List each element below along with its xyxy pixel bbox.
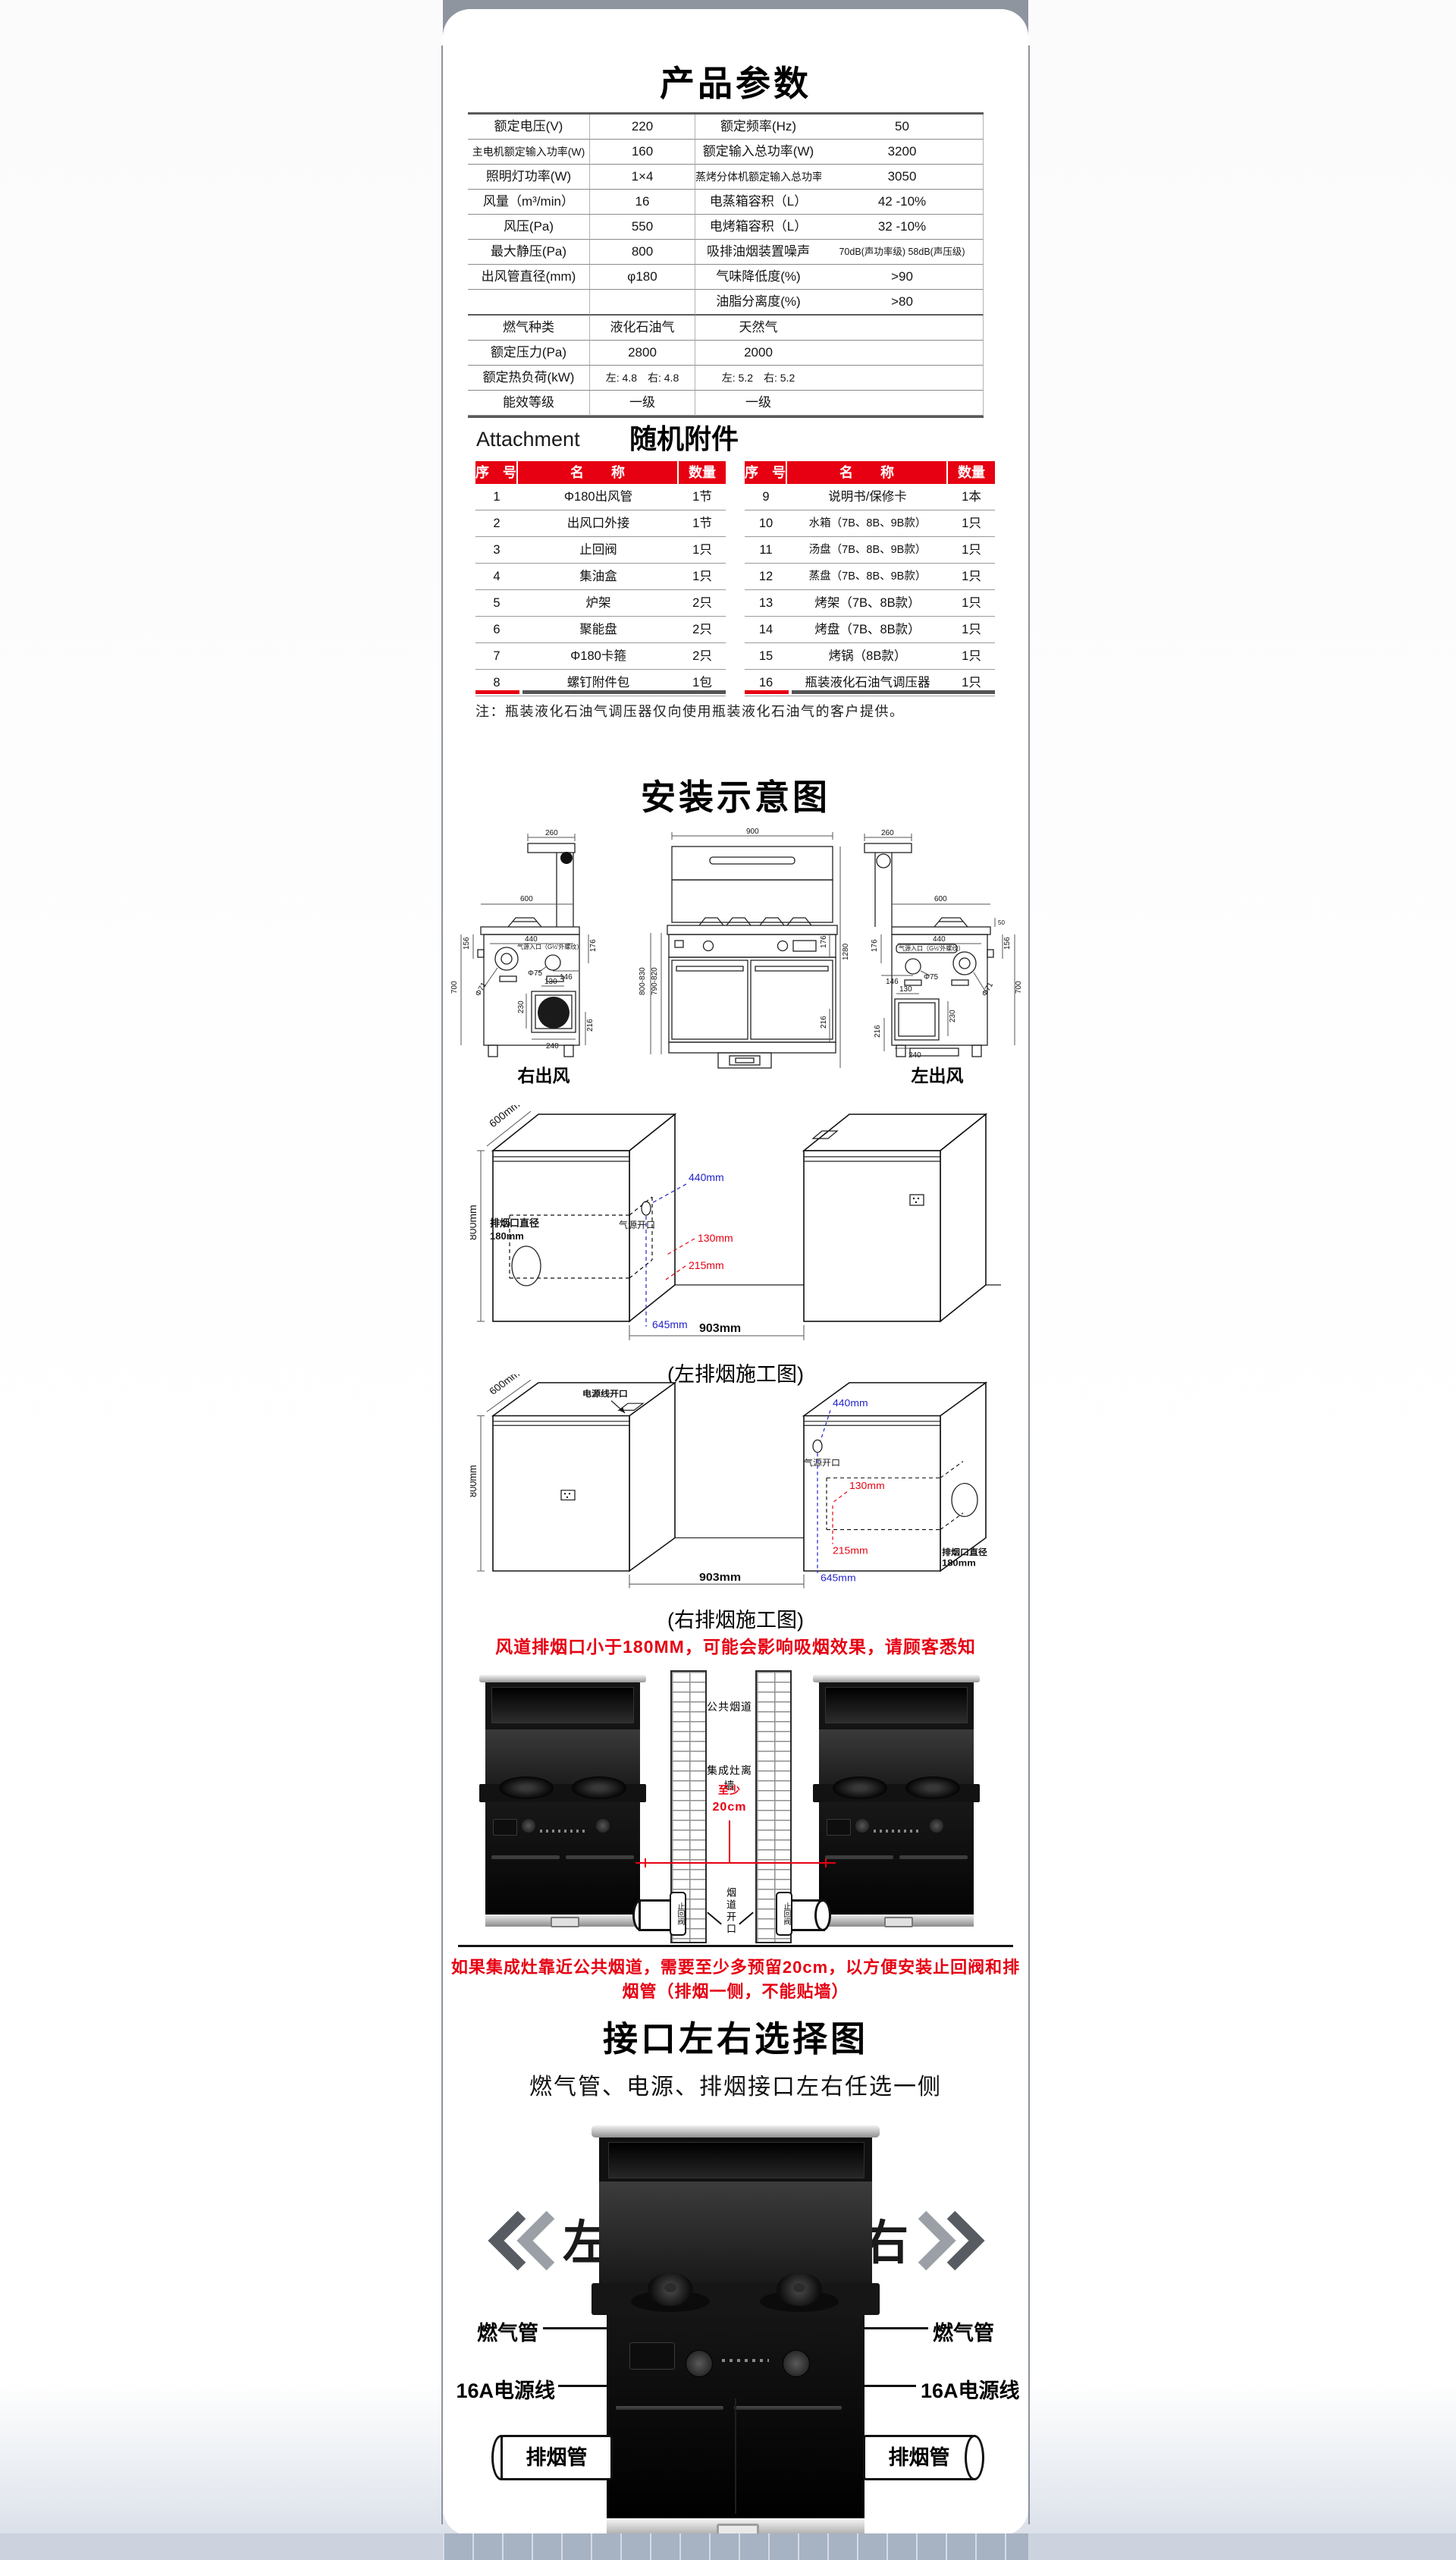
control-band [669, 934, 836, 957]
svg-text:Φ71: Φ71 [981, 981, 995, 997]
exhaust-pipe-label-right: 排烟管 [863, 2435, 975, 2480]
table-footer-red [745, 690, 789, 694]
param-label-1: 主电机额定输入功率(W) [468, 140, 590, 165]
base [669, 1042, 836, 1053]
svg-text:600mm: 600mm [487, 1105, 522, 1129]
svg-text:130mm: 130mm [698, 1232, 733, 1244]
svg-text:600: 600 [934, 895, 947, 903]
attachment-no: 6 [475, 617, 518, 643]
param-value-2 [821, 366, 984, 391]
svg-text:215mm: 215mm [689, 1259, 724, 1271]
interface-subtitle: 燃气管、电源、排烟接口左右任选一侧 [443, 2068, 1028, 2101]
param-value-2: 42 -10% [821, 190, 984, 215]
attachment-name: 止回阀 [518, 537, 679, 564]
attachment-no: 9 [745, 484, 787, 510]
param-value-1: 2800 [590, 341, 695, 366]
col-header-no: 序 号 [745, 461, 787, 484]
param-value-2: >90 [821, 265, 984, 290]
svg-text:903mm: 903mm [699, 1322, 741, 1335]
caption-duct-right: (右排烟施工图) [470, 1604, 1001, 1633]
param-value-2 [821, 391, 984, 416]
power-line-left [558, 2385, 607, 2387]
back-panel [672, 880, 833, 922]
svg-text:气源开口: 气源开口 [619, 1219, 655, 1230]
left-range-dims: 800-830 790-820 [639, 933, 661, 1054]
svg-text:176: 176 [871, 939, 879, 952]
wall-distance-min: 至少 [702, 1783, 757, 1798]
svg-text:700: 700 [450, 981, 459, 994]
attachment-title-cn: 随机附件 [629, 417, 739, 457]
attachment-rows-right: 9 说明书/保修卡 1本 10 水箱（7B、8B、9B款） 1只 11 汤盘（7… [745, 484, 995, 696]
svg-text:Φ75: Φ75 [528, 969, 543, 978]
svg-text:240: 240 [546, 1042, 559, 1051]
red-dim-tick-left [645, 1858, 646, 1867]
flue-warning: 如果集成灶靠近公共烟道，需要至少多预留20cm，以方便安装止回阀和排烟管（排烟一… [443, 1954, 1028, 2002]
flue-opening-label: 烟道开口 [723, 1887, 738, 1945]
param-label-2: 电烤箱容积（L） [695, 215, 821, 240]
param-label-2: 左: 5.2 右: 5.2 [695, 366, 821, 391]
attachment-no: 15 [745, 643, 787, 670]
svg-text:800mm: 800mm [470, 1205, 479, 1240]
param-label-1: 额定压力(Pa) [468, 341, 590, 366]
svg-text:排烟口直径: 排烟口直径 [942, 1547, 987, 1557]
svg-text:790-820: 790-820 [651, 967, 659, 995]
caption-right-outlet: 右出风 [518, 1066, 570, 1085]
power-label-right: 16A电源线 [921, 2374, 1020, 2404]
param-value-1: 液化石油气 [590, 316, 695, 341]
plinth [718, 1053, 771, 1068]
svg-text:645mm: 645mm [821, 1572, 856, 1583]
attachment-no: 3 [475, 537, 518, 564]
svg-text:176: 176 [589, 939, 598, 952]
table-footer-gray [792, 690, 995, 694]
attachment-name: 出风口外接 [518, 510, 679, 537]
param-value-1: 800 [590, 240, 695, 265]
burners [699, 918, 811, 925]
svg-text:216: 216 [586, 1019, 595, 1032]
svg-text:146: 146 [560, 973, 573, 982]
attachment-no: 7 [475, 643, 518, 670]
counter [667, 925, 837, 934]
attachment-qty: 1只 [948, 643, 995, 670]
svg-text:800-830: 800-830 [639, 967, 647, 995]
svg-text:440mm: 440mm [689, 1171, 724, 1183]
param-value-2: >80 [821, 290, 984, 316]
svg-text:排烟口直径: 排烟口直径 [490, 1217, 539, 1229]
attachment-qty: 1只 [679, 537, 726, 564]
param-value-2: 3200 [821, 140, 984, 165]
table-footer-red [475, 690, 519, 694]
interface-title: 接口左右选择图 [443, 2012, 1028, 2062]
attachment-no: 11 [745, 537, 787, 564]
svg-text:900: 900 [746, 828, 759, 836]
svg-text:130mm: 130mm [849, 1480, 885, 1490]
attachment-name: 蒸盘（7B、8B、9B款） [787, 564, 948, 590]
col-header-qty: 数量 [679, 461, 726, 484]
svg-text:180mm: 180mm [490, 1230, 524, 1242]
param-value-2: 3050 [821, 165, 984, 190]
attachment-qty: 1节 [679, 510, 726, 537]
param-label-2: 油脂分离度(%) [695, 290, 821, 316]
attachment-no: 1 [475, 484, 518, 510]
attachment-qty: 1本 [948, 484, 995, 510]
param-label-1: 最大静压(Pa) [468, 240, 590, 265]
param-value-1: φ180 [590, 265, 695, 290]
attachment-name: 烤架（7B、8B款） [787, 590, 948, 617]
svg-text:260: 260 [881, 829, 894, 837]
param-label-1: 燃气种类 [468, 316, 590, 341]
param-label-2: 气味降低度(%) [695, 265, 821, 290]
red-dim-horizontal [645, 1862, 827, 1864]
svg-text:903mm: 903mm [699, 1571, 741, 1583]
svg-text:电源线开口: 电源线开口 [582, 1389, 628, 1399]
attachment-note: 注：瓶装液化石油气调压器仅向使用瓶装液化石油气的客户提供。 [475, 701, 905, 721]
product-detail-page: 产品参数 额定电压(V) 220 额定频率(Hz) 50 主电机额定输入功率(W… [0, 0, 1456, 2560]
feet [488, 1045, 573, 1057]
param-label-2: 天然气 [695, 316, 821, 341]
chimney: 260 [864, 829, 912, 927]
param-label-1: 风压(Pa) [468, 215, 590, 240]
gas-line-right [864, 2327, 928, 2329]
svg-text:600: 600 [520, 895, 533, 903]
col-header-name: 名 称 [787, 461, 948, 484]
attachment-qty: 2只 [679, 617, 726, 643]
gas-label-left: 燃气管 [473, 2317, 538, 2346]
duct-diagram-right: 电源线开口 气源开口 [470, 1374, 1001, 1602]
attachment-name: 烤锅（8B款） [787, 643, 948, 670]
svg-text:700: 700 [1015, 981, 1023, 994]
param-value-1 [590, 290, 695, 316]
attachment-name: 烤盘（7B、8B款） [787, 617, 948, 643]
col-header-name: 名 称 [518, 461, 679, 484]
attachment-name: 汤盘（7B、8B、9B款） [787, 537, 948, 564]
param-label-2: 一级 [695, 391, 821, 416]
attachment-name: Φ180卡箍 [518, 643, 679, 670]
param-value-1: 左: 4.8 右: 4.8 [590, 366, 695, 391]
cabinet-left: 电源线开口 [493, 1383, 675, 1571]
diagram-right-outlet: 260 600 Φ71 气源入口（G½'外螺纹） Φ75 [449, 827, 639, 1100]
attachment-qty: 1只 [948, 510, 995, 537]
svg-text:130: 130 [544, 978, 557, 986]
attachment-title-en: Attachment [476, 428, 580, 451]
red-dim-vertical [729, 1820, 730, 1862]
attachment-qty: 1只 [679, 564, 726, 590]
svg-text:215mm: 215mm [833, 1545, 868, 1556]
attachment-no: 5 [475, 590, 518, 617]
param-label-1: 能效等级 [468, 391, 590, 416]
svg-text:气源入口（G½'外螺纹）: 气源入口（G½'外螺纹） [899, 944, 964, 952]
gas-label-right: 燃气管 [933, 2317, 994, 2346]
attachment-table-right: 序 号 名 称 数量 [745, 461, 995, 484]
params-title: 产品参数 [443, 56, 1028, 106]
card-right-edge [1028, 46, 1030, 2524]
attachment-rows-left: 1 Φ180出风管 1节 2 出风口外接 1节 3 止回阀 1只 4 集油盒 1… [475, 484, 726, 696]
param-value-1: 550 [590, 215, 695, 240]
attachment-qty: 1只 [948, 537, 995, 564]
param-value-2: 50 [821, 115, 984, 140]
params-table: 额定电压(V) 220 额定频率(Hz) 50 主电机额定输入功率(W) 160… [468, 112, 984, 418]
param-label-2: 电蒸箱容积（L） [695, 190, 821, 215]
col-header-qty: 数量 [948, 461, 995, 484]
attachment-qty: 1节 [679, 484, 726, 510]
table-footer-gray [522, 690, 726, 694]
svg-text:180mm: 180mm [942, 1558, 976, 1568]
red-dim-ext-left [635, 1862, 645, 1864]
param-label-1: 风量（m³/min） [468, 190, 590, 215]
wall-distance-value: 20cm [702, 1801, 757, 1814]
svg-text:气源开口: 气源开口 [804, 1458, 840, 1468]
attachment-name: 说明书/保修卡 [787, 484, 948, 510]
attachment-name: 聚能盘 [518, 617, 679, 643]
pipe-cap-right [814, 1899, 831, 1931]
attachment-name: 水箱（7B、8B、9B款） [787, 510, 948, 537]
attachment-name: 集油盒 [518, 564, 679, 590]
param-value-1: 16 [590, 190, 695, 215]
svg-text:176: 176 [820, 935, 828, 948]
attachment-qty: 1只 [948, 617, 995, 643]
param-value-1: 1×4 [590, 165, 695, 190]
dim-height: 800mm [470, 1151, 485, 1321]
exhaust-pipe-cap-right [965, 2435, 984, 2480]
attachment-qty: 2只 [679, 643, 726, 670]
svg-text:230: 230 [517, 1000, 526, 1013]
check-valve-right: 止回阀 [776, 1892, 792, 1936]
stove-photo-right [813, 1675, 980, 1931]
stove-photo-left [479, 1675, 646, 1931]
svg-text:Φ75: Φ75 [924, 973, 939, 982]
svg-text:130: 130 [899, 985, 912, 994]
bottom-ruler-band [443, 2533, 1028, 2560]
col-header-no: 序 号 [475, 461, 518, 484]
param-label-1: 出风管直径(mm) [468, 265, 590, 290]
param-value-2 [821, 341, 984, 366]
attachment-no: 10 [745, 510, 787, 537]
param-label-1: 照明灯功率(W) [468, 165, 590, 190]
public-flue-label: 公共烟道 [702, 1699, 757, 1714]
attachment-no: 13 [745, 590, 787, 617]
param-label-2: 额定输入总功率(W) [695, 140, 821, 165]
svg-text:156: 156 [1003, 937, 1012, 950]
duct-warning: 风道排烟口小于180MM，可能会影响吸烟效果，请顾客悉知 [443, 1632, 1028, 1658]
gas-line-left [543, 2327, 607, 2329]
cabinet-right [804, 1114, 986, 1321]
svg-text:216: 216 [874, 1025, 882, 1038]
param-value-2: 70dB(声功率级) 58dB(声压级) [821, 240, 984, 265]
flue-opening-arrow-left [707, 1912, 722, 1925]
param-value-1: 160 [590, 140, 695, 165]
flue-opening-arrow-right [739, 1912, 754, 1925]
attachment-no: 14 [745, 617, 787, 643]
svg-text:216: 216 [820, 1016, 828, 1029]
dim-span: 903mm [629, 1571, 804, 1588]
chevrons-left-icon [485, 2209, 558, 2273]
param-value-1: 220 [590, 115, 695, 140]
attachment-name: Φ180出风管 [518, 484, 679, 510]
counter-and-body: 600 50 气源入口（G½'外螺纹） Φ75 Φ71 440 146 [881, 895, 1005, 1045]
floor-line [458, 1945, 1013, 1947]
param-label-2: 额定频率(Hz) [695, 115, 821, 140]
svg-text:260: 260 [545, 829, 558, 837]
attachment-qty: 2只 [679, 590, 726, 617]
svg-text:800mm: 800mm [470, 1465, 479, 1497]
check-valve-left: 止回阀 [670, 1892, 686, 1936]
attachment-no: 4 [475, 564, 518, 590]
cabinet-left: 排烟口直径 180mm 气源开口 [490, 1114, 675, 1321]
param-label-2: 吸排油烟装置噪声 [695, 240, 821, 265]
exhaust-pipe-label-left: 排烟管 [500, 2435, 613, 2480]
svg-text:50: 50 [998, 919, 1005, 926]
param-label-2: 2000 [695, 341, 821, 366]
param-label-1: 额定热负荷(kW) [468, 366, 590, 391]
attachment-qty: 1只 [948, 564, 995, 590]
power-line-right [864, 2385, 916, 2387]
counter-and-body: 600 Φ71 气源入口（G½'外螺纹） Φ75 440 146 [474, 895, 582, 1045]
duct-diagram-left: 排烟口直径 180mm 气源开口 600mm 800mm 440mm 645mm [470, 1105, 1001, 1355]
exhaust-opening: 130 230 240 216 [517, 978, 595, 1051]
content-card: 产品参数 额定电压(V) 220 额定频率(Hz) 50 主电机额定输入功率(W… [443, 9, 1028, 2536]
attachment-no: 12 [745, 564, 787, 590]
red-dim-ext-right [827, 1862, 836, 1864]
install-title: 安装示意图 [443, 770, 1028, 820]
diagram-front-view: 800-830 790-820 900 [639, 827, 851, 1100]
diagram-left-outlet: 260 600 50 气源入口（G½'外螺纹） Φ75 [845, 827, 1023, 1100]
param-value-2: 32 -10% [821, 215, 984, 240]
svg-text:156: 156 [463, 937, 471, 950]
param-label-1 [468, 290, 590, 316]
svg-text:440mm: 440mm [833, 1397, 868, 1408]
param-value-2 [821, 316, 984, 341]
attachment-table-left: 序 号 名 称 数量 [475, 461, 726, 484]
chimney: 260 [528, 829, 575, 927]
caption-left-outlet: 左出风 [912, 1066, 964, 1085]
doors [669, 957, 836, 1042]
attachment-no: 2 [475, 510, 518, 537]
svg-text:440: 440 [525, 935, 538, 944]
power-label-left: 16A电源线 [449, 2374, 555, 2404]
attachment-name: 炉架 [518, 590, 679, 617]
cabinet-right: 气源开口 [804, 1383, 986, 1571]
chevrons-right-icon [915, 2209, 987, 2273]
hood [672, 847, 833, 880]
svg-text:230: 230 [949, 1010, 957, 1022]
svg-text:440: 440 [933, 935, 946, 944]
attachment-qty: 1只 [948, 590, 995, 617]
svg-text:146: 146 [886, 978, 899, 986]
dim-height: 800mm [470, 1416, 485, 1572]
svg-text:645mm: 645mm [652, 1318, 688, 1330]
param-label-2: 蒸烤分体机额定输入总功率(W) [695, 165, 821, 190]
param-label-1: 额定电压(V) [468, 115, 590, 140]
param-value-1: 一级 [590, 391, 695, 416]
svg-text:600mm: 600mm [487, 1374, 522, 1396]
